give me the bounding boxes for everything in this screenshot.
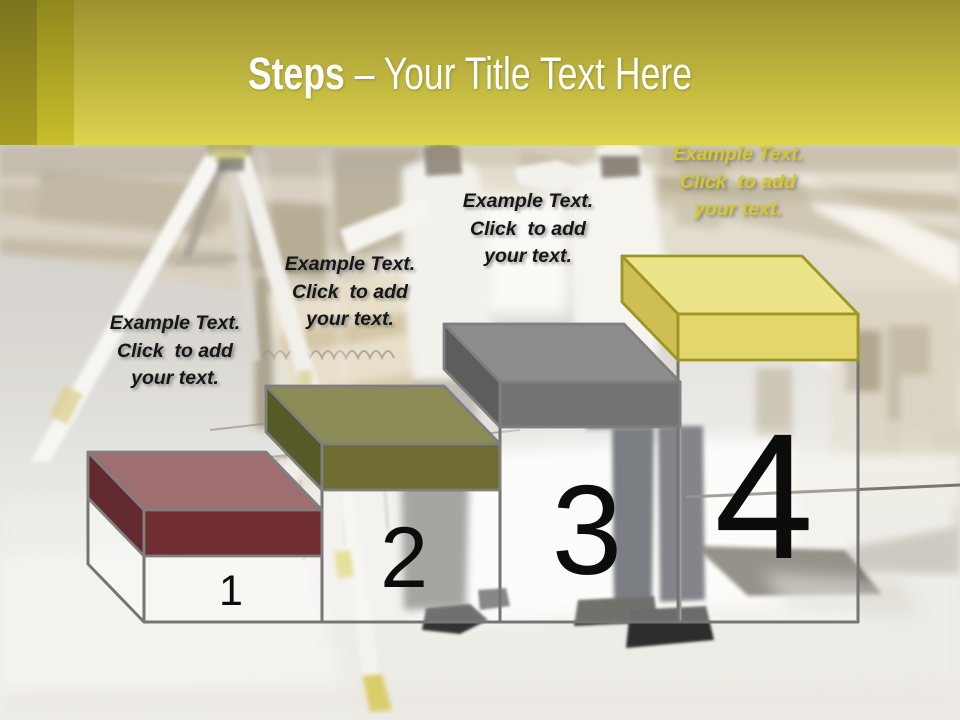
svg-text:3: 3: [552, 459, 623, 601]
svg-text:4: 4: [714, 396, 814, 596]
svg-text:1: 1: [219, 567, 243, 615]
svg-text:2: 2: [380, 510, 428, 606]
